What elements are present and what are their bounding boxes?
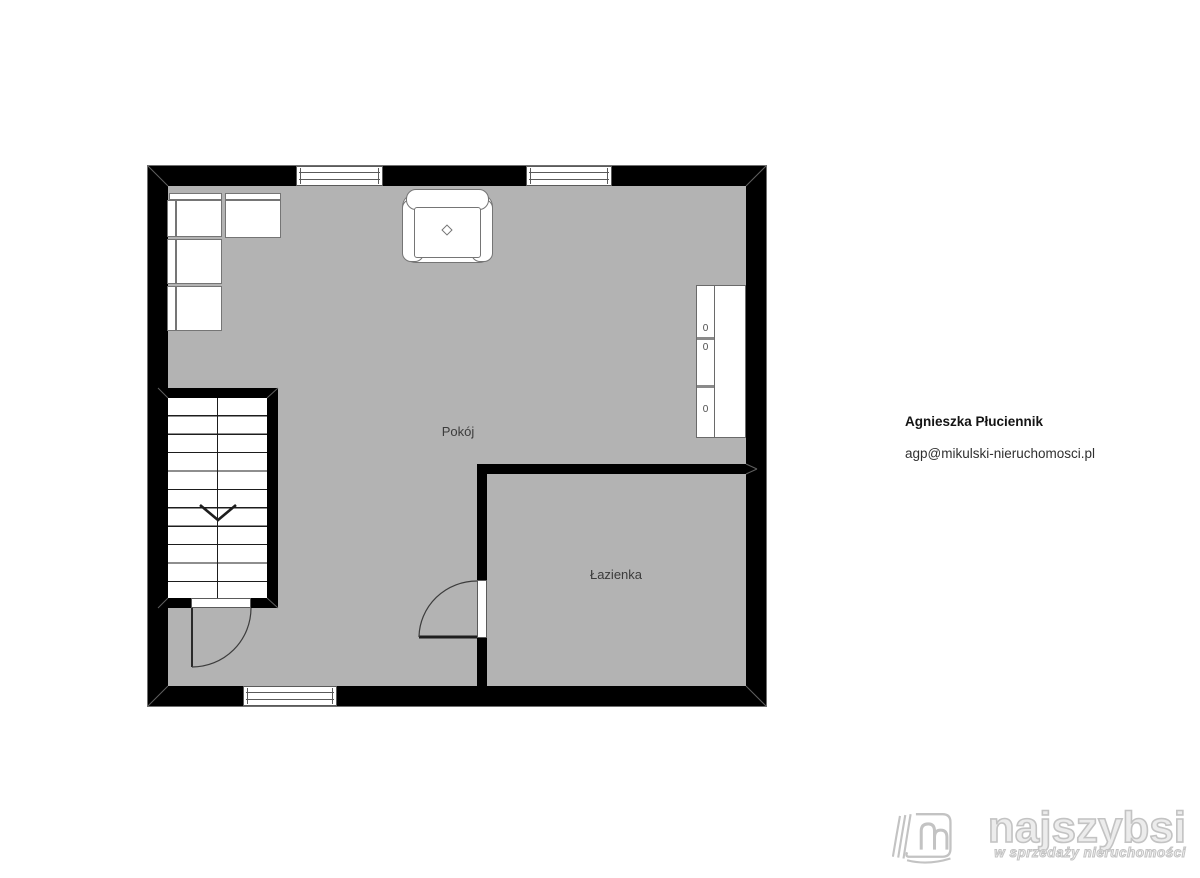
entry-door-opening: [191, 598, 251, 608]
wardrobe: 0 0 0: [696, 285, 746, 438]
wardrobe-shelf-label: 0: [697, 342, 714, 354]
stair-wall-right: [267, 388, 278, 608]
wardrobe-divider: [714, 286, 715, 437]
contact-name: Agnieszka Płuciennik: [905, 414, 1043, 429]
bathroom-door-slab: [477, 580, 487, 638]
sofa-back-strip: [225, 193, 281, 200]
sofa-back-strip: [169, 193, 222, 200]
bathroom-wall-top: [477, 464, 746, 474]
logo-icon: [892, 810, 954, 873]
window-top-left: [296, 166, 383, 186]
wardrobe-shelf-label: 0: [697, 404, 714, 416]
sofa-seat: [176, 239, 222, 284]
brand-name: najszybsi: [988, 808, 1186, 848]
page: 0 0 0 Pokój Łazienka: [0, 0, 1200, 878]
wardrobe-shelf: [697, 337, 714, 340]
bathroom-wall-left-lower: [477, 638, 487, 686]
window-bottom: [243, 686, 337, 706]
stair-centerline: [217, 398, 218, 598]
sofa-seat: [176, 286, 222, 331]
wardrobe-shelf-label: 0: [697, 323, 714, 335]
wardrobe-shelf: [697, 385, 714, 388]
bathroom-wall-left-upper: [477, 464, 487, 581]
room-label-lazienka: Łazienka: [566, 567, 666, 582]
sofa-seat: [176, 200, 222, 237]
staircase: [168, 398, 267, 598]
contact-email: agp@mikulski-nieruchomosci.pl: [905, 446, 1095, 461]
sofa-back-strip: [167, 286, 176, 331]
sofa-back-strip: [167, 239, 176, 284]
stair-wall-top: [148, 388, 278, 398]
brand-logo: najszybsi w sprzedaży nieruchomości: [988, 808, 1186, 860]
room-label-pokoj: Pokój: [418, 424, 498, 439]
floorplan: 0 0 0 Pokój Łazienka: [148, 166, 766, 706]
armchair: [402, 189, 493, 263]
sofa-back-strip: [167, 200, 176, 237]
window-top-right: [526, 166, 612, 186]
sofa-seat: [225, 200, 281, 238]
brand-tagline: w sprzedaży nieruchomości: [988, 845, 1186, 860]
